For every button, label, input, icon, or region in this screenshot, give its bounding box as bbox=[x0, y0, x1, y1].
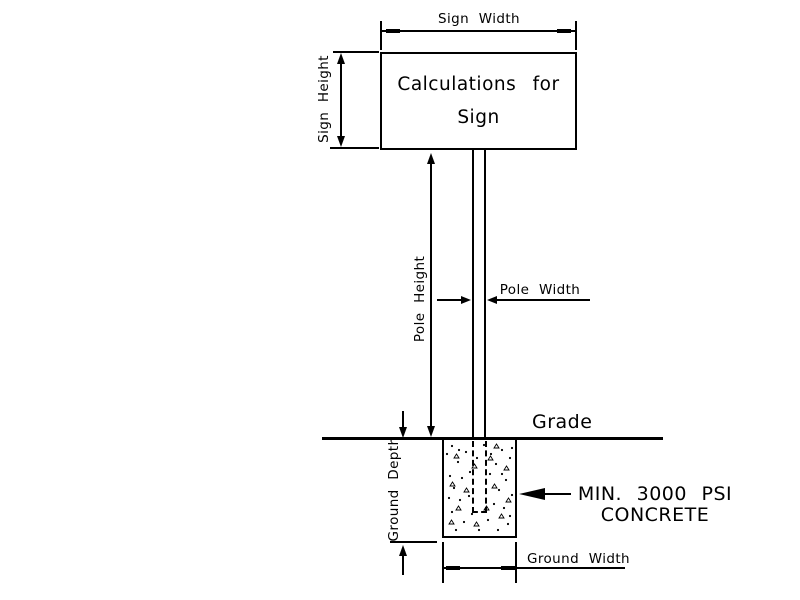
concrete-note-line2: CONCRETE bbox=[570, 505, 740, 526]
pole-width-leader-right bbox=[495, 299, 590, 301]
ground-width-dimension-line bbox=[443, 567, 625, 569]
sign-calculation-diagram: Sign Width Calculations for Sign Sign He… bbox=[0, 0, 800, 600]
concrete-note: MIN. 3000 PSI CONCRETE bbox=[570, 484, 740, 526]
ground-width-extension-right bbox=[515, 542, 517, 583]
pole-embedded-right-hidden-line bbox=[485, 441, 487, 513]
sign-height-arrow-up-icon bbox=[337, 53, 345, 64]
ground-width-tick-left bbox=[446, 566, 460, 570]
concrete-note-line1: MIN. 3000 PSI bbox=[570, 484, 740, 505]
sign-box-text-line2: Sign bbox=[457, 101, 499, 134]
concrete-foundation bbox=[442, 438, 517, 538]
pole-height-arrow-up-icon bbox=[427, 153, 435, 164]
pole-embedded-left-hidden-line bbox=[472, 441, 474, 513]
pole-width-label: Pole Width bbox=[480, 282, 600, 298]
pole-height-dimension-line bbox=[430, 158, 432, 428]
ground-width-extension-left bbox=[442, 542, 444, 583]
sign-width-extension-left bbox=[380, 21, 382, 50]
pole-left-line bbox=[472, 150, 474, 438]
concrete-stipple-texture bbox=[444, 440, 515, 536]
pole-width-leader-left bbox=[437, 299, 462, 301]
sign-width-tick-left bbox=[386, 29, 400, 33]
sign-height-arrow-down-icon bbox=[337, 136, 345, 147]
concrete-callout-leader bbox=[543, 493, 571, 495]
ground-width-label: Ground Width bbox=[527, 551, 630, 567]
ground-depth-dimension-line-bottom bbox=[402, 555, 404, 575]
pole-height-label: Pole Height bbox=[412, 229, 428, 369]
ground-depth-label: Ground Depth bbox=[386, 417, 402, 561]
sign-width-extension-right bbox=[575, 21, 577, 50]
sign-box-text-line1: Calculations for bbox=[397, 68, 559, 101]
sign-width-label: Sign Width bbox=[400, 11, 558, 27]
sign-height-dimension-line bbox=[340, 57, 342, 143]
pole-embedded-bottom-hidden-line bbox=[473, 511, 486, 513]
pole-height-arrow-down-icon bbox=[427, 426, 435, 437]
concrete-callout-arrow-icon bbox=[519, 488, 545, 500]
grade-label: Grade bbox=[532, 411, 592, 433]
sign-height-label: Sign Height bbox=[316, 37, 332, 161]
pole-width-arrow-right-icon bbox=[461, 296, 471, 304]
sign-width-dimension-line bbox=[381, 30, 577, 32]
sign-height-extension-bottom bbox=[330, 147, 379, 149]
ground-width-tick-right bbox=[501, 566, 515, 570]
sign-box: Calculations for Sign bbox=[380, 52, 577, 150]
sign-width-tick-right bbox=[557, 29, 571, 33]
